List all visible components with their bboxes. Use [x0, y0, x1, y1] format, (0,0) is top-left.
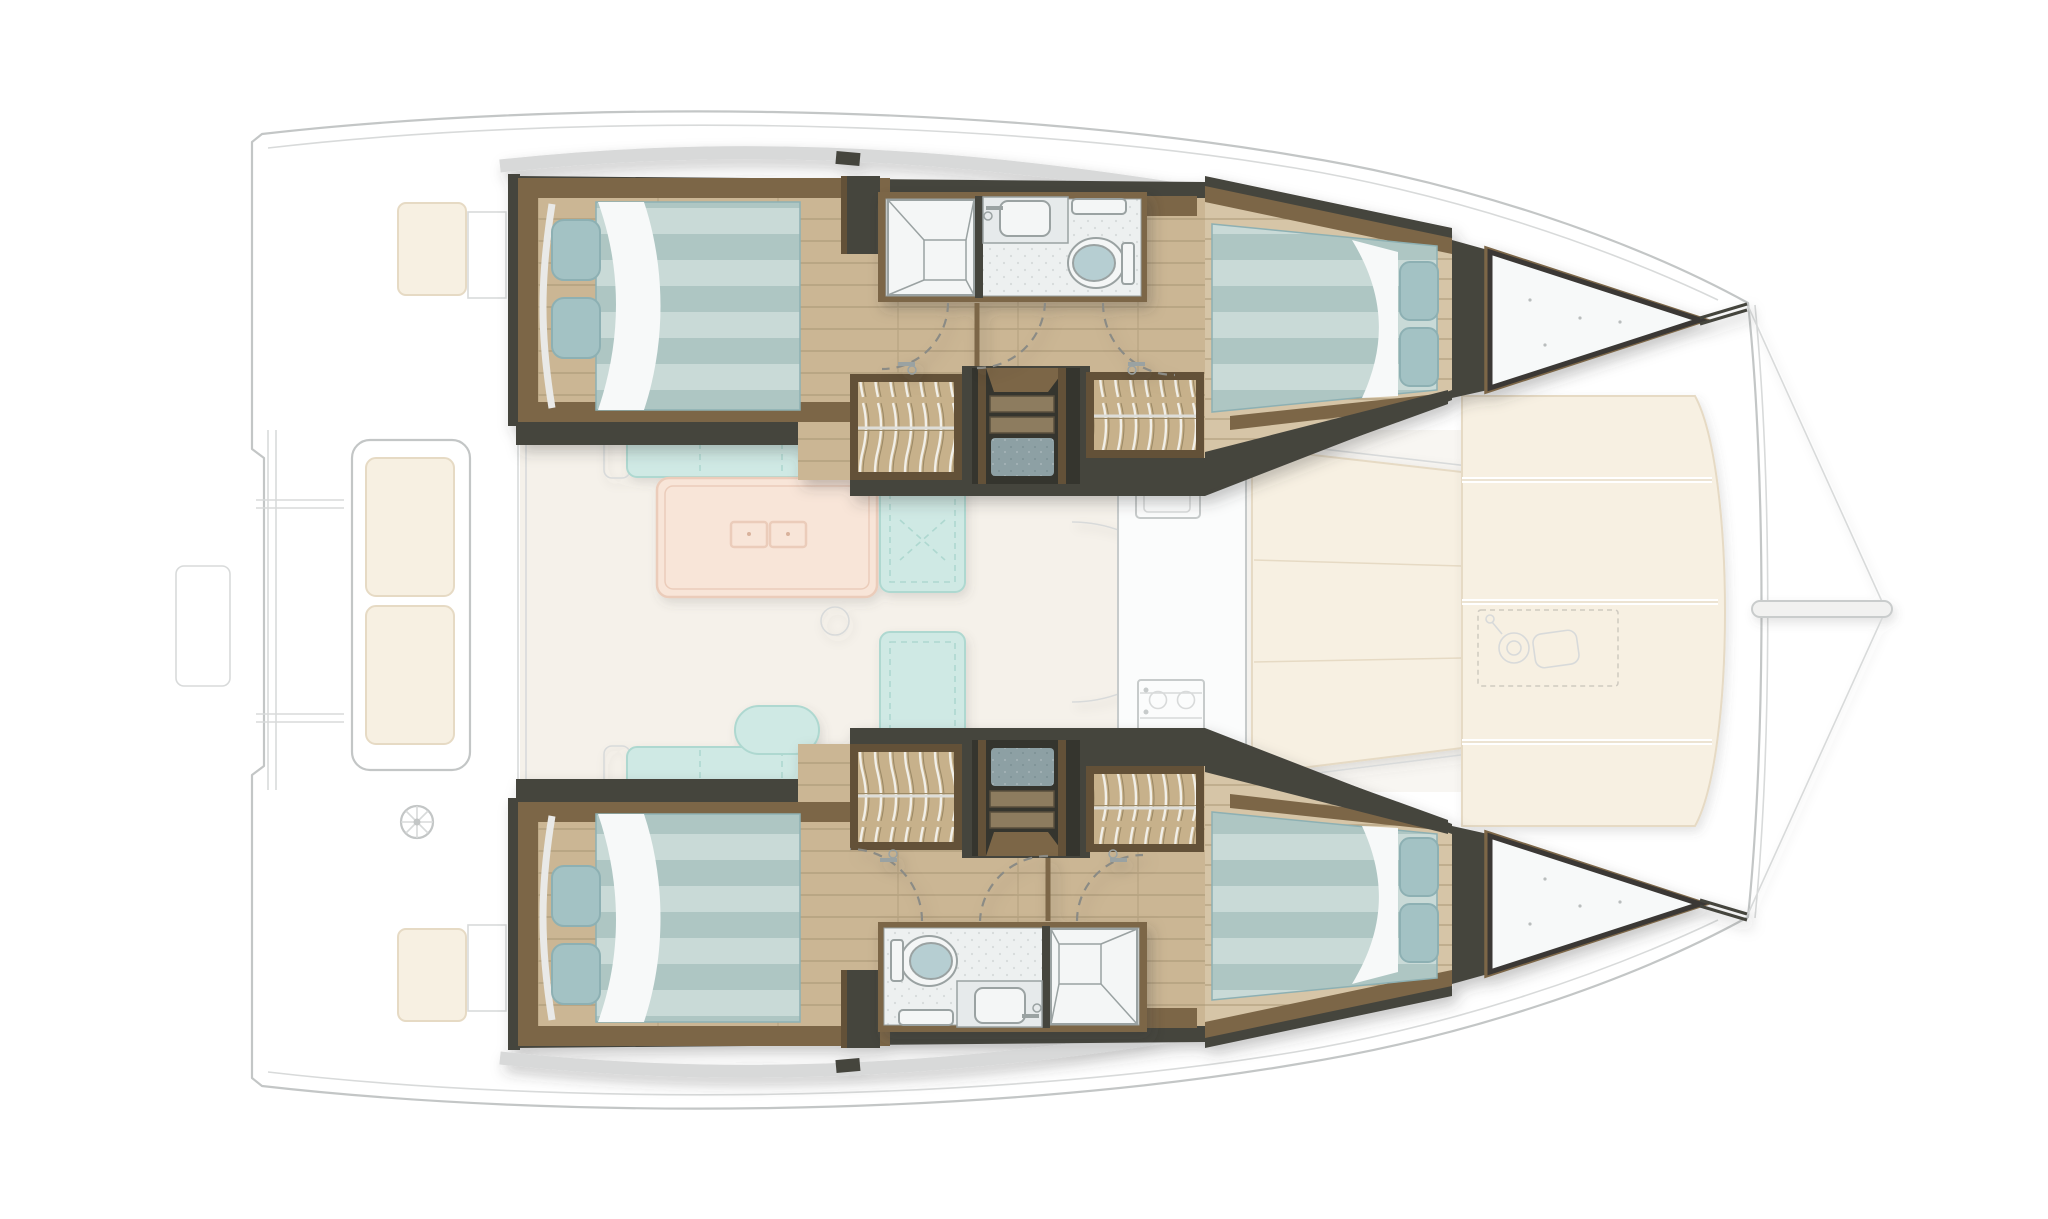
cockpit-corner-seat — [398, 929, 466, 1021]
foredeck-sunpads — [1462, 396, 1725, 826]
bridle-line — [1748, 306, 1884, 606]
steering-wheel-icon — [401, 806, 433, 838]
bridle-line — [1748, 614, 1884, 914]
aft-cockpit — [176, 203, 506, 1021]
bowsprit — [1748, 306, 1892, 914]
salon-table — [657, 478, 877, 597]
catamaran-floorplan — [0, 0, 2048, 1219]
cockpit-slatted-locker — [468, 925, 506, 1011]
fwd-cockpit-settee — [1246, 440, 1468, 782]
settee-cushions — [1252, 448, 1462, 774]
cockpit-corner-seat — [398, 203, 466, 295]
cockpit-slatted-locker — [468, 212, 506, 298]
helm-console — [176, 566, 230, 686]
bench-cushion — [366, 606, 454, 744]
foredeck — [1462, 306, 1892, 914]
floorplan-canvas — [0, 0, 2048, 1219]
bench-cushion — [366, 458, 454, 596]
